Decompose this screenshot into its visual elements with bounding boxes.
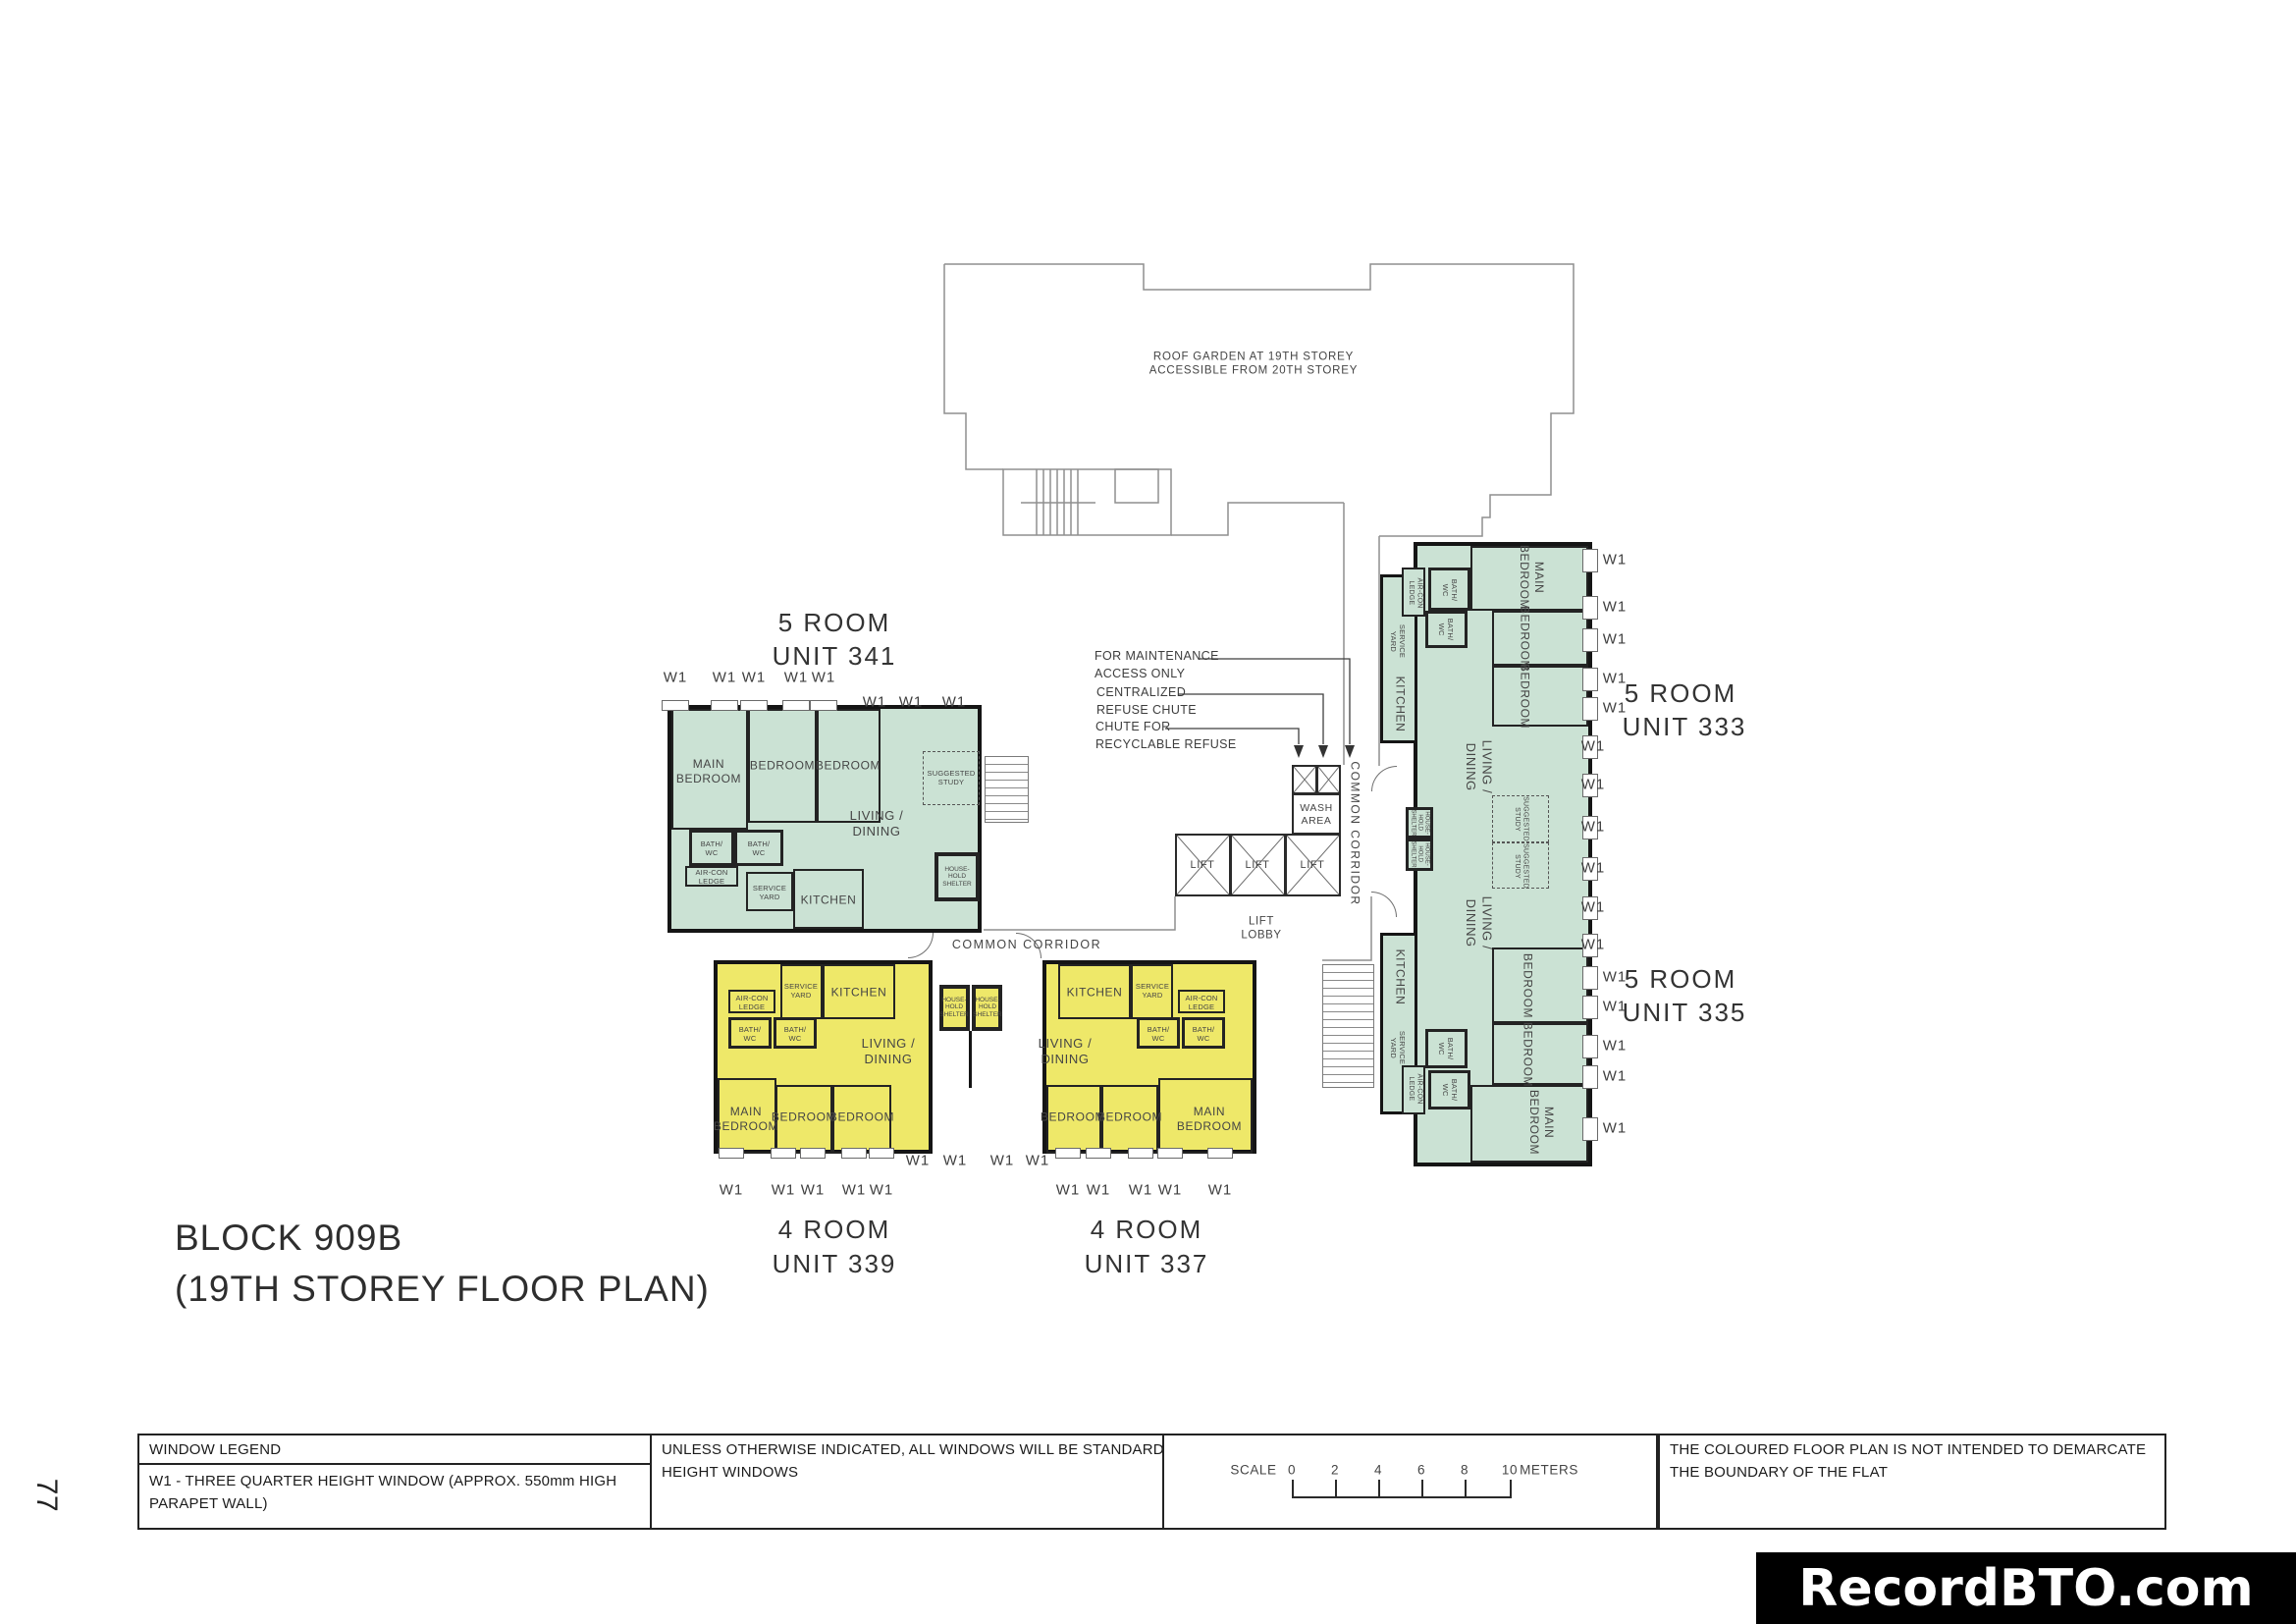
- w1-window-label: W1: [942, 694, 967, 713]
- room-label: BATH/ WC: [739, 1025, 762, 1043]
- w1-window: [782, 700, 810, 711]
- room-label: SERVICE YARD: [1389, 1031, 1407, 1064]
- w1-window: [1582, 697, 1598, 721]
- w1-window-label: W1: [943, 1153, 968, 1171]
- room-label: LIVING / DINING: [1039, 1036, 1093, 1068]
- maintenance-annotation: FOR MAINTENANCE ACCESS ONLY: [1095, 648, 1219, 682]
- scale-unit-label: METERS: [1520, 1463, 1578, 1480]
- unit-333-bedroom-3: [1492, 666, 1588, 727]
- w1-window: [719, 1148, 744, 1159]
- refuse-chute-left: [1292, 765, 1317, 794]
- legend-windows-note: UNLESS OTHERWISE INDICATED, ALL WINDOWS …: [662, 1439, 1164, 1484]
- w1-window: [1128, 1148, 1153, 1159]
- w1-window-label: W1: [720, 1182, 744, 1201]
- w1-window-label: W1: [842, 1182, 867, 1201]
- watermark-text: RecordBTO.com: [1798, 1559, 2253, 1618]
- unit-337-number-label: UNIT 337: [1085, 1248, 1209, 1280]
- plan-outlines: [0, 0, 2296, 1624]
- w1-window-label: W1: [1603, 1120, 1628, 1139]
- w1-window-label: W1: [1581, 777, 1606, 795]
- room-label: KITCHEN: [1393, 677, 1408, 732]
- room-label: HOUSE- HOLD SHELTER: [942, 866, 972, 888]
- w1-window: [1582, 1117, 1598, 1141]
- w1-window-label: W1: [1581, 937, 1606, 955]
- room-label: BATH/ WC: [784, 1025, 807, 1043]
- refuse-chute-right: [1316, 765, 1341, 794]
- room-label: LIVING / DINING: [862, 1036, 916, 1068]
- room-label: BEDROOM: [816, 759, 881, 774]
- w1-window-label: W1: [1603, 999, 1628, 1017]
- wash-area-label: WASH AREA: [1300, 802, 1333, 828]
- roof-garden-note: ROOF GARDEN AT 19TH STOREY ACCESSIBLE FR…: [1149, 351, 1358, 379]
- room-label: BATH/ WC: [1441, 579, 1459, 602]
- unit-333-number-label: UNIT 333: [1623, 711, 1747, 743]
- w1-window-label: W1: [713, 670, 737, 688]
- w1-window: [869, 1148, 894, 1159]
- room-label: KITCHEN: [801, 893, 857, 908]
- room-label: BEDROOM: [1097, 1110, 1162, 1125]
- w1-window: [740, 700, 768, 711]
- w1-window: [810, 700, 837, 711]
- legend-window-title: WINDOW LEGEND: [149, 1439, 281, 1462]
- room-label: BATH/ WC: [1148, 1025, 1170, 1043]
- party-wall: [969, 1031, 972, 1088]
- room-label: BEDROOM: [1518, 606, 1532, 671]
- w1-window-label: W1: [1603, 969, 1628, 988]
- room-label: SERVICE YARD: [1389, 624, 1407, 658]
- room-label: MAIN BEDROOM: [1177, 1105, 1242, 1134]
- scale-bar-tick: [1292, 1480, 1294, 1498]
- w1-window: [1157, 1148, 1183, 1159]
- unit-335-bedroom-3: [1492, 1023, 1588, 1085]
- w1-window-label: W1: [906, 1153, 931, 1171]
- scale-tick-4: 4: [1374, 1463, 1382, 1480]
- room-label: HOUSE- HOLD SHELTER: [939, 997, 969, 1018]
- w1-window-label: W1: [863, 694, 887, 713]
- watermark-banner: RecordBTO.com: [1756, 1552, 2296, 1624]
- unit-335-bedroom-2: [1492, 947, 1588, 1023]
- room-label: AIR-CON LEDGE: [695, 868, 727, 886]
- room-label: AIR-CON LEDGE: [1407, 1074, 1423, 1105]
- w1-window: [771, 1148, 796, 1159]
- scale-bar-tick: [1465, 1480, 1467, 1498]
- room-label: MAIN BEDROOM: [1517, 545, 1546, 610]
- common-corridor-label: COMMON CORRIDOR: [952, 938, 1101, 953]
- room-label: AIR-CON LEDGE: [735, 994, 768, 1011]
- room-label: BEDROOM: [772, 1110, 836, 1125]
- room-label: BATH/ WC: [1437, 1038, 1455, 1060]
- w1-window: [841, 1148, 867, 1159]
- scale-bar-tick: [1378, 1480, 1380, 1498]
- room-label: LIVING / DINING: [1463, 896, 1495, 950]
- w1-window-label: W1: [1603, 1038, 1628, 1056]
- room-label: BATH/ WC: [1441, 1079, 1459, 1102]
- room-label: LIVING / DINING: [850, 808, 904, 840]
- w1-window: [1207, 1148, 1233, 1159]
- w1-window-label: W1: [1026, 1153, 1050, 1171]
- room-label: BATH/ WC: [701, 839, 723, 857]
- unit-339-number-label: UNIT 339: [773, 1248, 897, 1280]
- page-title-line1: BLOCK 909B: [175, 1218, 402, 1259]
- w1-window-label: W1: [1603, 552, 1628, 570]
- w1-window-label: W1: [1603, 671, 1628, 689]
- w1-window-label: W1: [1603, 631, 1628, 650]
- room-label: HOUSE- HOLD SHELTER: [973, 997, 1002, 1018]
- legend-scale-box: [1162, 1434, 1658, 1530]
- w1-window-label: W1: [801, 1182, 826, 1201]
- room-label: SERVICE YARD: [753, 884, 786, 901]
- w1-window-label: W1: [990, 1153, 1015, 1171]
- room-label: BEDROOM: [1521, 953, 1535, 1018]
- unit-333-type-label: 5 ROOM: [1625, 677, 1737, 710]
- w1-window-label: W1: [812, 670, 836, 688]
- scale-tick-6: 6: [1417, 1463, 1425, 1480]
- legend-window-divider: [137, 1463, 652, 1465]
- room-label: BEDROOM: [1518, 664, 1532, 729]
- unit-335-number-label: UNIT 335: [1623, 997, 1747, 1029]
- w1-window-label: W1: [1129, 1182, 1153, 1201]
- room-label: AIR-CON LEDGE: [1185, 994, 1217, 1011]
- lift-label: LIFT: [1190, 859, 1214, 873]
- w1-window: [1582, 996, 1598, 1019]
- scale-tick-8: 8: [1461, 1463, 1468, 1480]
- w1-window: [662, 700, 689, 711]
- room-label: HOUSE- HOLD SHELTER: [1410, 809, 1430, 836]
- room-label: BEDROOM: [1521, 1022, 1535, 1087]
- room-label: SUGGESTED STUDY: [1513, 796, 1529, 841]
- scale-tick-0: 0: [1288, 1463, 1296, 1480]
- w1-window: [1582, 668, 1598, 691]
- w1-window-label: W1: [1581, 860, 1606, 879]
- room-label: MAIN BEDROOM: [1526, 1090, 1556, 1155]
- lift-label: LIFT: [1245, 859, 1269, 873]
- scale-bar-tick: [1510, 1480, 1512, 1498]
- room-label: BEDROOM: [1041, 1110, 1105, 1125]
- w1-window-label: W1: [1581, 738, 1606, 757]
- w1-window-label: W1: [1603, 700, 1628, 719]
- room-label: SERVICE YARD: [784, 982, 818, 1000]
- lift-lobby-label: LIFT LOBBY: [1241, 915, 1281, 944]
- staircase-right: [1322, 964, 1374, 1088]
- w1-window-label: W1: [1158, 1182, 1183, 1201]
- room-label: MAIN BEDROOM: [714, 1105, 778, 1134]
- room-label: BATH/ WC: [1437, 619, 1455, 641]
- w1-window: [800, 1148, 826, 1159]
- room-label: SUGGESTED STUDY: [1513, 843, 1529, 889]
- room-label: LIVING / DINING: [1463, 740, 1495, 794]
- unit-335-type-label: 5 ROOM: [1625, 963, 1737, 996]
- room-label: SERVICE YARD: [1136, 982, 1169, 1000]
- w1-window: [711, 700, 738, 711]
- w1-window: [1086, 1148, 1111, 1159]
- w1-window-label: W1: [1208, 1182, 1233, 1201]
- scale-label: SCALE: [1230, 1463, 1276, 1480]
- lift-label: LIFT: [1300, 859, 1324, 873]
- scale-tick-2: 2: [1331, 1463, 1339, 1480]
- w1-window: [1582, 596, 1598, 620]
- room-label: SUGGESTED STUDY: [928, 769, 976, 786]
- w1-window-label: W1: [772, 1182, 796, 1201]
- room-label: AIR-CON LEDGE: [1407, 578, 1423, 609]
- w1-window: [1582, 628, 1598, 652]
- room-label: MAIN BEDROOM: [676, 757, 741, 786]
- scale-tick-10: 10: [1502, 1463, 1518, 1480]
- room-label: BATH/ WC: [1193, 1025, 1215, 1043]
- w1-window-label: W1: [1581, 819, 1606, 838]
- room-label: KITCHEN: [1393, 949, 1408, 1005]
- w1-window-label: W1: [870, 1182, 894, 1201]
- floor-plan-page: ROOF GARDEN AT 19TH STOREY ACCESSIBLE FR…: [0, 0, 2296, 1624]
- page-number: 77: [27, 1479, 65, 1513]
- w1-window-label: W1: [664, 670, 688, 688]
- room-label: KITCHEN: [1067, 986, 1123, 1001]
- w1-window-label: W1: [1087, 1182, 1111, 1201]
- scale-bar: [1292, 1496, 1510, 1498]
- w1-window-label: W1: [1581, 899, 1606, 918]
- unit-339-type-label: 4 ROOM: [778, 1214, 891, 1246]
- w1-window: [1582, 966, 1598, 990]
- w1-window-label: W1: [899, 694, 924, 713]
- common-corridor-label-vertical: COMMON CORRIDOR: [1348, 761, 1362, 905]
- page-title-line2: (19TH STOREY FLOOR PLAN): [175, 1269, 710, 1310]
- w1-window-label: W1: [1056, 1182, 1081, 1201]
- staircase-center: [985, 756, 1029, 823]
- w1-window-label: W1: [784, 670, 809, 688]
- w1-window: [1582, 1065, 1598, 1089]
- centralized-refuse-annotation: CENTRALIZED REFUSE CHUTE: [1096, 684, 1197, 719]
- unit-341-type-label: 5 ROOM: [778, 607, 891, 639]
- unit-337-type-label: 4 ROOM: [1091, 1214, 1203, 1246]
- w1-window-label: W1: [1603, 599, 1628, 618]
- room-label: BEDROOM: [750, 759, 815, 774]
- legend-boundary-note: THE COLOURED FLOOR PLAN IS NOT INTENDED …: [1670, 1439, 2146, 1484]
- w1-window-label: W1: [1603, 1068, 1628, 1087]
- unit-341-number-label: UNIT 341: [773, 640, 897, 673]
- room-label: HOUSE- HOLD SHELTER: [1410, 840, 1430, 867]
- room-label: KITCHEN: [831, 986, 887, 1001]
- scale-bar-tick: [1421, 1480, 1423, 1498]
- unit-333-bedroom-2: [1492, 611, 1588, 666]
- room-label: BEDROOM: [829, 1110, 894, 1125]
- w1-window-label: W1: [742, 670, 767, 688]
- recyclable-refuse-annotation: CHUTE FOR RECYCLABLE REFUSE: [1095, 719, 1237, 753]
- w1-window: [1582, 549, 1598, 572]
- legend-w1-description: W1 - THREE QUARTER HEIGHT WINDOW (APPROX…: [149, 1471, 616, 1515]
- room-label: BATH/ WC: [748, 839, 771, 857]
- scale-bar-tick: [1335, 1480, 1337, 1498]
- w1-window: [1582, 1035, 1598, 1058]
- w1-window: [1055, 1148, 1081, 1159]
